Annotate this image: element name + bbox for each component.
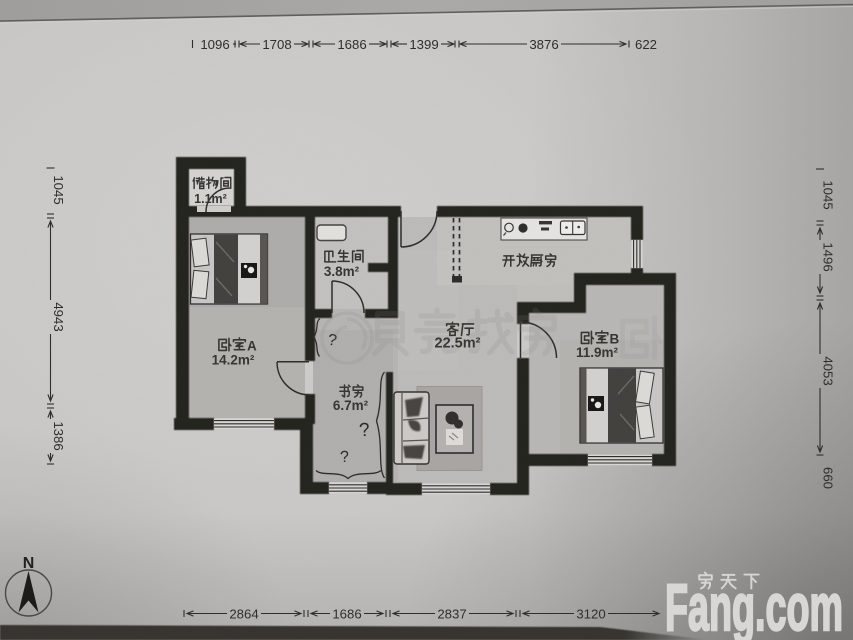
svg-text:Fang.com: Fang.com: [665, 570, 843, 640]
svg-text:N: N: [23, 555, 35, 572]
